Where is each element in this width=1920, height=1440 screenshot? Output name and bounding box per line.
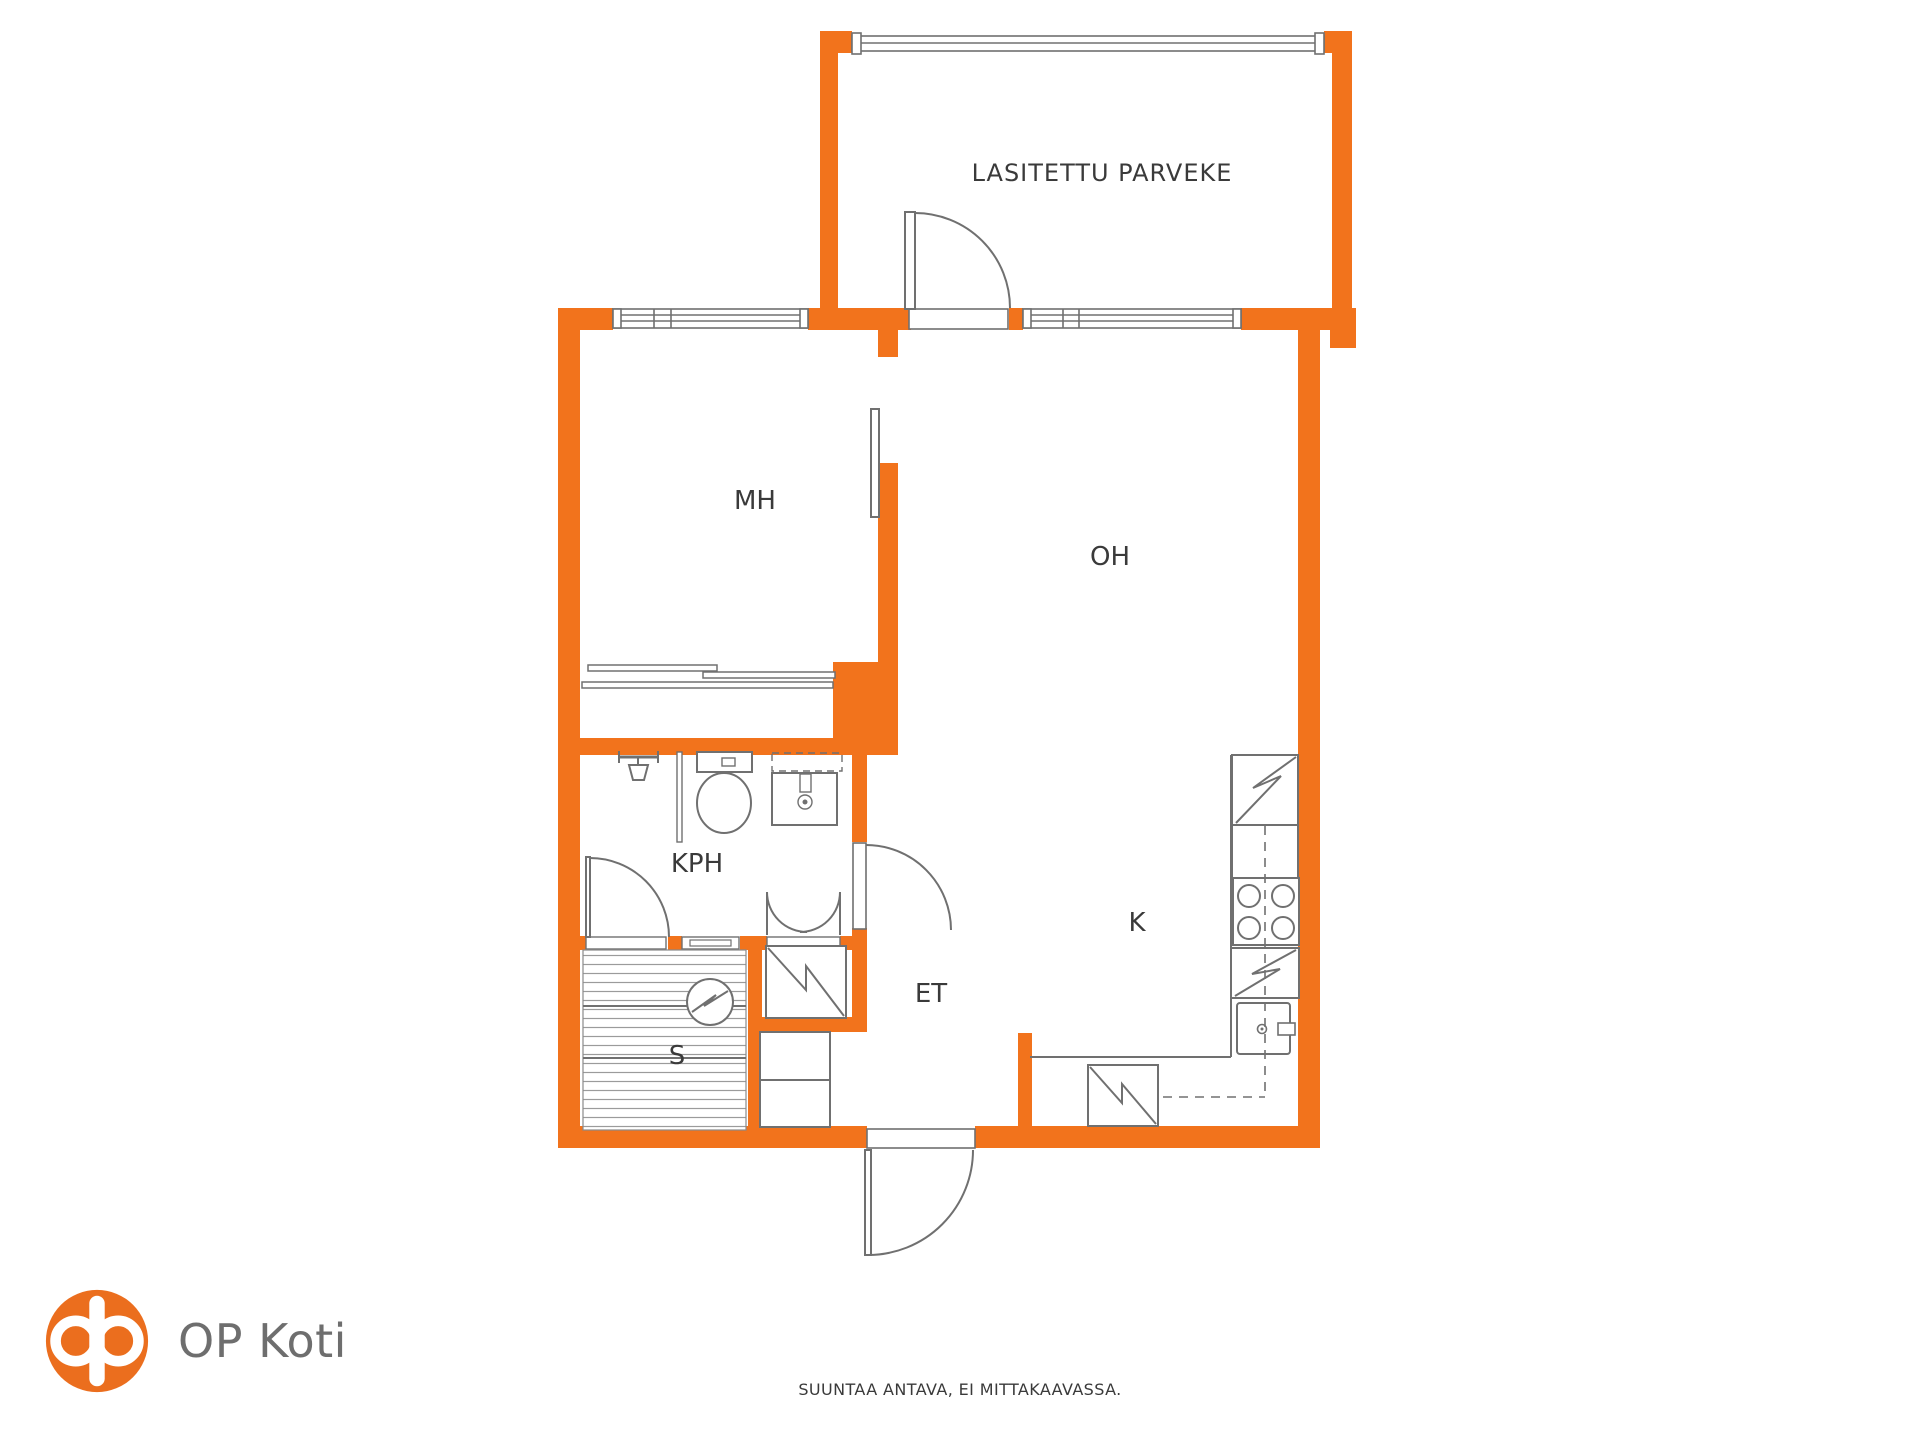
wall-segment — [1298, 327, 1320, 1148]
wall-segment — [748, 1017, 867, 1032]
kph-door — [586, 857, 669, 949]
refrigerator-icon — [1232, 755, 1298, 825]
entrance-door — [865, 1129, 975, 1255]
room-label-mh: MH — [734, 486, 776, 516]
room-label-oh: OH — [1090, 542, 1130, 572]
room-labels: LASITETTU PARVEKE MH OH KPH ET K S — [669, 159, 1233, 1071]
wall-segment — [878, 327, 898, 357]
closet-double-door — [767, 892, 840, 949]
toilet-icon — [697, 752, 752, 833]
et-storage — [760, 946, 846, 1127]
wall-segment — [1241, 308, 1356, 330]
kitchen-fixtures — [1030, 755, 1299, 1126]
sauna — [583, 950, 746, 1130]
kph-entrance-door — [853, 843, 951, 930]
wall-segment — [1330, 330, 1356, 348]
balcony-glazing-window — [852, 33, 1324, 54]
upper-cabinet-dashed — [772, 753, 842, 771]
sauna-bench-area — [583, 950, 746, 1130]
wall-segment — [558, 308, 580, 1148]
shower-icon — [619, 751, 658, 780]
wall-segment — [975, 1126, 1320, 1148]
room-label-parveke: LASITETTU PARVEKE — [972, 159, 1233, 187]
bathroom-fixtures — [619, 751, 842, 842]
mh-window — [613, 309, 808, 328]
op-koti-logo: OP Koti — [44, 1288, 347, 1394]
water-heater-icon — [766, 946, 846, 1018]
wall-segment — [808, 308, 911, 330]
cooktop-icon — [1233, 878, 1299, 945]
wardrobe-sliding-panel — [703, 672, 835, 678]
wall-segment — [1009, 308, 1023, 330]
sauna-stove-icon — [687, 979, 733, 1025]
kitchen-sink-icon — [1237, 1003, 1295, 1054]
shower-screen — [677, 752, 682, 842]
wall-segment — [1332, 31, 1352, 323]
washbasin-icon — [772, 773, 837, 825]
floor-plan: LASITETTU PARVEKE MH OH KPH ET K S — [0, 0, 1920, 1440]
footer-disclaimer: SUUNTAA ANTAVA, EI MITTAKAAVASSA. — [0, 1380, 1920, 1399]
room-label-et: ET — [915, 979, 947, 1009]
floorplan-page: LASITETTU PARVEKE MH OH KPH ET K S OP Ko… — [0, 0, 1920, 1440]
wall-segment — [852, 755, 867, 842]
wardrobe-icon — [582, 682, 833, 688]
wall-segment — [820, 31, 838, 310]
wardrobe-sliding-panel — [588, 665, 717, 671]
oh-window — [1023, 309, 1241, 328]
base-cabinet-icon — [1088, 1065, 1158, 1126]
cabinet-icon — [760, 1080, 830, 1127]
mh-wardrobe — [582, 665, 835, 688]
room-label-k: K — [1128, 908, 1146, 938]
op-logo-icon — [44, 1288, 150, 1394]
wall-segment — [820, 31, 852, 53]
wall-segment — [878, 463, 898, 662]
balcony-door — [905, 212, 1010, 329]
cabinet-icon — [760, 1032, 830, 1080]
wall-segment — [1018, 1033, 1032, 1126]
logo-text: OP Koti — [178, 1318, 347, 1364]
wall-segment — [668, 936, 682, 950]
room-label-kph: KPH — [671, 849, 723, 879]
mh-sliding-door — [871, 409, 879, 517]
room-label-s: S — [669, 1041, 686, 1071]
wall-segment — [833, 662, 898, 755]
wall-segment — [558, 738, 833, 755]
sauna-door — [682, 937, 739, 949]
